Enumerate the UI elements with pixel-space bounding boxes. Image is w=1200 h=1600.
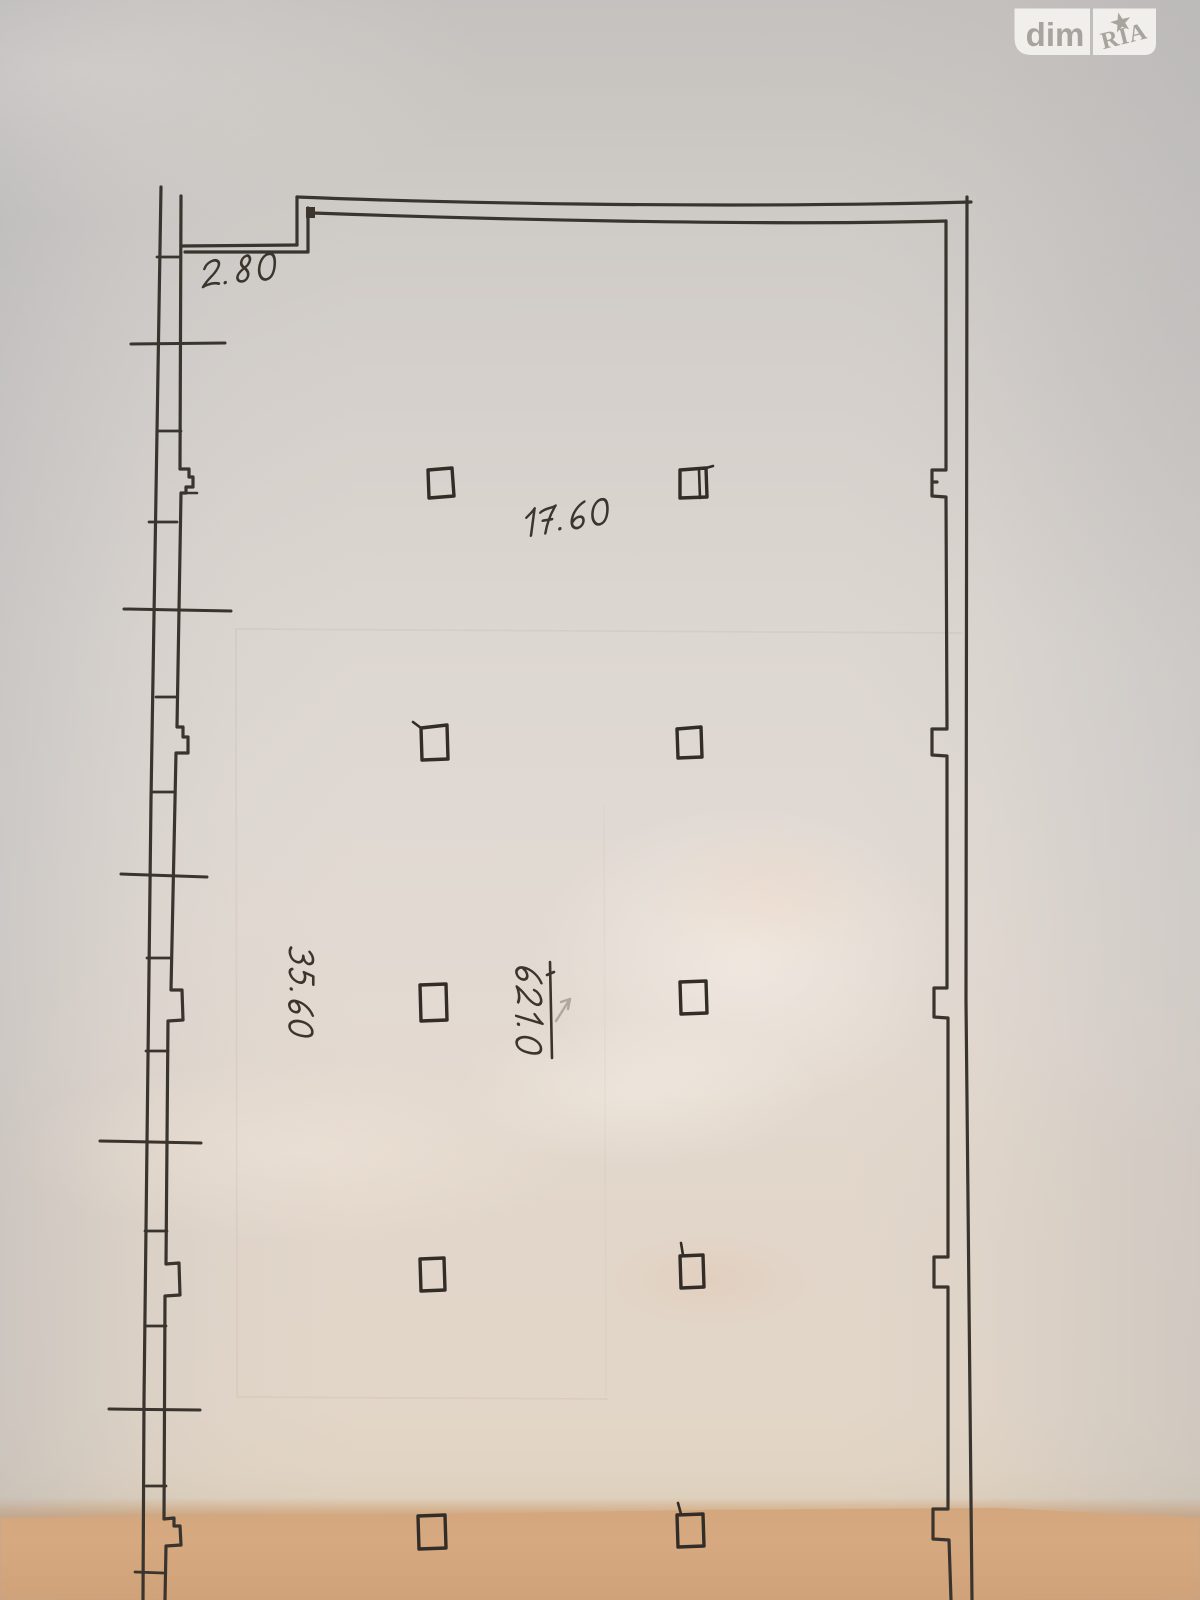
svg-text:dim: dim xyxy=(1026,16,1085,53)
